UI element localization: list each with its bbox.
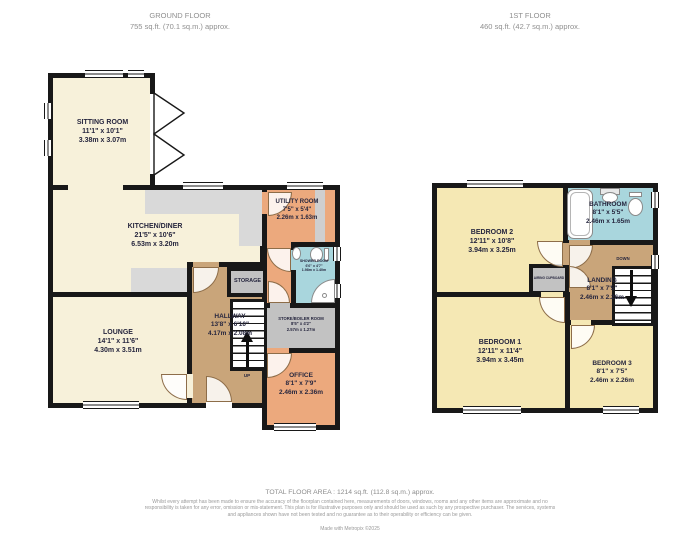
label-store-boiler: STORE/BOILER ROOM 8'5" x 4'2" 2.57m x 1.… [263, 316, 339, 332]
total-floor-area: TOTAL FLOOR AREA : 1214 sq.ft. (112.8 sq… [130, 489, 570, 496]
first-floor-title: 1ST FLOOR [509, 11, 551, 20]
label-airing-cupboard: AIRING CUPBOARD [531, 276, 567, 280]
label-lounge: LOUNGE 14'1" x 11'6" 4.30m x 3.51m [58, 328, 178, 355]
window [183, 182, 223, 190]
first-floor-header: 1ST FLOOR 460 sq.ft. (42.7 sq.m.) approx… [430, 11, 630, 33]
credit-text: Made with Metropix ©2025 [140, 526, 560, 532]
label-hallway: HALLWAY 13'8" x 6'10" 4.17m x 2.08m [188, 313, 272, 338]
label-bedroom3: BEDROOM 3 8'1" x 7'5" 2.46m x 2.26m [568, 360, 656, 385]
french-doors-icon [153, 92, 187, 176]
window [44, 103, 52, 119]
label-bedroom2: BEDROOM 2 12'11" x 10'8" 3.94m x 3.25m [437, 228, 547, 255]
window [128, 70, 144, 78]
window [85, 70, 123, 78]
shower-drain-icon [322, 293, 327, 298]
up-arrow-icon [246, 341, 249, 367]
kitchen-counter-bottom [131, 268, 188, 294]
label-stairs-down: DOWN [608, 256, 638, 261]
label-bedroom1: BEDROOM 1 12'11" x 11'4" 3.94m x 3.45m [445, 338, 555, 365]
label-office: OFFICE 8'1" x 7'9" 2.46m x 2.36m [263, 372, 339, 397]
door-gap-store [270, 303, 290, 308]
ground-floor-area: 755 sq.ft. (70.1 sq.m.) approx. [130, 22, 230, 31]
window [287, 182, 323, 190]
ground-floor-header: GROUND FLOOR 755 sq.ft. (70.1 sq.m.) app… [80, 11, 280, 33]
window [651, 255, 659, 269]
window [463, 406, 521, 414]
label-utility-room: UTILITY ROOM 7'5" x 5'4" 2.26m x 1.63m [259, 199, 335, 222]
window [603, 406, 639, 414]
label-stairs-up: UP [237, 373, 257, 378]
window [83, 401, 139, 409]
label-sitting-room: SITTING ROOM 11'1" x 10'1" 3.38m x 3.07m [50, 118, 155, 145]
label-landing: LANDING 8'1" x 7'5" 2.46m x 2.26m [559, 277, 645, 302]
disclaimer-text: Whilst every attempt has been made to en… [140, 499, 560, 518]
window [651, 192, 659, 208]
toilet-tank-icon [629, 192, 642, 197]
window [467, 180, 523, 188]
label-storage: STORAGE [230, 278, 265, 285]
label-bathroom: BATHROOM 8'1" x 5'5" 2.46m x 1.65m [564, 201, 652, 226]
opening-sitting-kitchen [68, 185, 123, 194]
window [274, 423, 316, 431]
label-shower-room: SHOWER ROOM 6'6" x 4'7" 1.98m x 1.40m [293, 259, 335, 273]
first-floor-area: 460 sq.ft. (42.7 sq.m.) approx. [480, 22, 580, 31]
door-gap-front-entrance [206, 402, 232, 409]
label-kitchen-diner: KITCHEN/DINER 21'5" x 10'6" 6.53m x 3.20… [95, 222, 215, 249]
ground-floor-title: GROUND FLOOR [149, 11, 210, 20]
door-gap-lounge-hallway [187, 374, 193, 398]
